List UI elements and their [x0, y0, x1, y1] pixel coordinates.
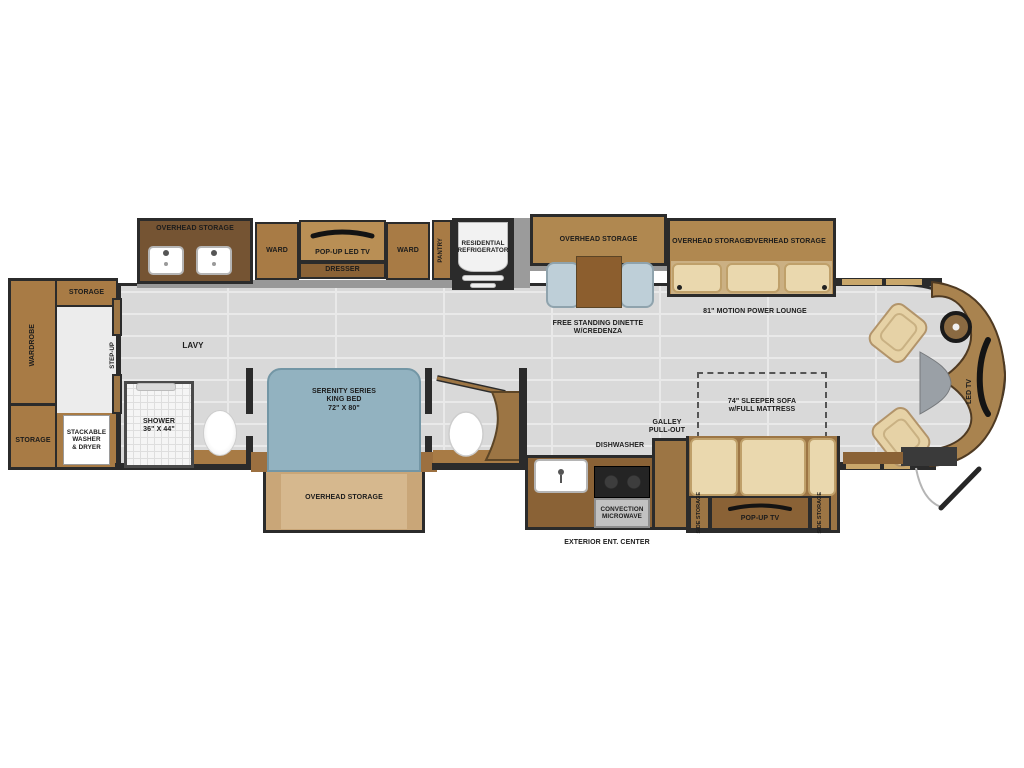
sofa-cushion	[740, 438, 806, 496]
convection-microwave: CONVECTION MICROWAVE	[594, 498, 650, 528]
ward-left: WARD	[255, 222, 299, 280]
pop-up-tv-icon	[301, 224, 384, 240]
pantry-label: PANTRY	[438, 238, 445, 263]
fridge-label: RESIDENTIAL REFRIGERATOR	[458, 240, 509, 255]
toilet-icon	[203, 410, 237, 456]
pop-up-tv-label: POP-UP TV	[712, 515, 808, 523]
lounge-arm-dot	[677, 285, 682, 290]
rear-storage-bottom: STORAGE	[10, 425, 56, 457]
fridge-tray	[462, 275, 504, 281]
lounge-arm-dot	[822, 285, 827, 290]
shower-shelf	[136, 383, 176, 391]
exterior-ent-center-label: EXTERIOR ENT. CENTER	[547, 539, 667, 547]
washer-dryer-label: STACKABLE WASHER & DRYER	[67, 429, 106, 451]
lav-overhead-storage-label: OVERHEAD STORAGE	[140, 225, 250, 233]
sleeper-sofa-label: 74" SLEEPER SOFA w/FULL MATTRESS	[702, 398, 822, 415]
king-bed-label: SERENITY SERIES KING BED 72" X 80"	[284, 388, 404, 413]
faucet-icon	[163, 250, 169, 256]
lounge-cushion	[726, 263, 780, 293]
lavy-label: LAVY	[170, 341, 216, 350]
dishwasher-label: DISHWASHER	[585, 442, 655, 450]
sofa-cushion	[808, 438, 836, 496]
rear-storage-top: STORAGE	[57, 281, 116, 307]
shower-label: SHOWER 36" X 44"	[127, 418, 191, 435]
king-bed	[267, 368, 421, 472]
corner-cabinet	[486, 392, 521, 460]
side-storage-right-label: SIDE STORAGE	[817, 492, 823, 533]
rear-storage-top-label: STORAGE	[69, 289, 104, 297]
pop-up-led-tv-label: POP-UP LED TV	[301, 249, 384, 257]
galley-sink-icon	[534, 459, 588, 493]
lounge-overhead-label-2: OVERHEAD STORAGE	[747, 238, 827, 246]
dinette-label: FREE STANDING DINETTE W/CREDENZA	[538, 320, 658, 337]
steering-hub-icon	[953, 324, 960, 331]
front-cab: LED TV	[836, 240, 1014, 520]
washer-dryer: STACKABLE WASHER & DRYER	[63, 415, 110, 465]
bottom-wall-mid	[432, 463, 528, 470]
pop-up-tv-icon	[712, 500, 808, 512]
dresser: DRESSER	[299, 262, 386, 279]
step-up-label: STEP-UP	[110, 342, 117, 369]
dinette-chair-left	[546, 262, 580, 308]
lounge-label: 81" MOTION POWER LOUNGE	[685, 308, 825, 316]
microwave-label: CONVECTION MICROWAVE	[601, 506, 644, 521]
rear-storage-bottom-label: STORAGE	[15, 437, 50, 445]
cooktop-icon	[594, 466, 650, 498]
ward-right: WARD	[386, 222, 430, 280]
bed-overhead-label: OVERHEAD STORAGE	[263, 494, 425, 502]
ward-right-label: WARD	[397, 247, 419, 255]
step-wall-lower	[112, 374, 122, 414]
dinette-overhead-label: OVERHEAD STORAGE	[530, 236, 667, 244]
half-bath-wall	[519, 368, 527, 463]
ward-left-label: WARD	[266, 247, 288, 255]
lav-sink-left-icon	[148, 246, 184, 275]
sofa-cushion	[690, 438, 738, 496]
side-storage-left: SIDE STORAGE	[689, 496, 710, 530]
dresser-label: DRESSER	[325, 266, 360, 274]
wardrobe-label: WARDROBE	[29, 324, 37, 366]
entry-step	[901, 447, 957, 466]
bed-wall-stub	[246, 368, 253, 414]
front-cabinet-strip	[843, 452, 903, 464]
faucet-icon	[211, 250, 217, 256]
step-up-area: STEP-UP	[106, 330, 122, 380]
side-storage-left-label: SIDE STORAGE	[696, 492, 702, 533]
lounge-overhead-label-1: OVERHEAD STORAGE	[671, 238, 751, 246]
tv-cabinet: POP-UP LED TV	[299, 220, 386, 262]
side-storage-right: SIDE STORAGE	[810, 496, 831, 530]
wardrobe-cabinet: WARDROBE	[11, 290, 55, 400]
led-tv-label: LED TV	[966, 379, 973, 404]
drain-icon	[212, 262, 216, 266]
door-swing-arc	[916, 468, 941, 507]
faucet-stem	[560, 475, 562, 483]
dinette-chair-right	[620, 262, 654, 308]
pantry: PANTRY	[432, 220, 452, 280]
galley-pullout-label: GALLEY PULL-OUT	[637, 419, 697, 436]
drain-icon	[164, 262, 168, 266]
wall-gap	[514, 218, 530, 288]
pop-up-tv-cabinet: POP-UP TV	[710, 496, 810, 530]
half-bath	[430, 360, 530, 470]
wardrobe-shelf-wall	[11, 403, 55, 406]
engine-console	[920, 352, 951, 414]
dinette-table	[576, 256, 622, 308]
toilet-icon	[449, 412, 483, 456]
lav-sink-right-icon	[196, 246, 232, 275]
residential-refrigerator: RESIDENTIAL REFRIGERATOR	[458, 222, 508, 272]
bath-door	[437, 378, 505, 393]
fridge-tray-small	[470, 283, 496, 288]
entry-door	[941, 469, 979, 508]
rv-floorplan: WARDROBE STORAGE STORAGE STACKABLE WASHE…	[0, 0, 1024, 768]
